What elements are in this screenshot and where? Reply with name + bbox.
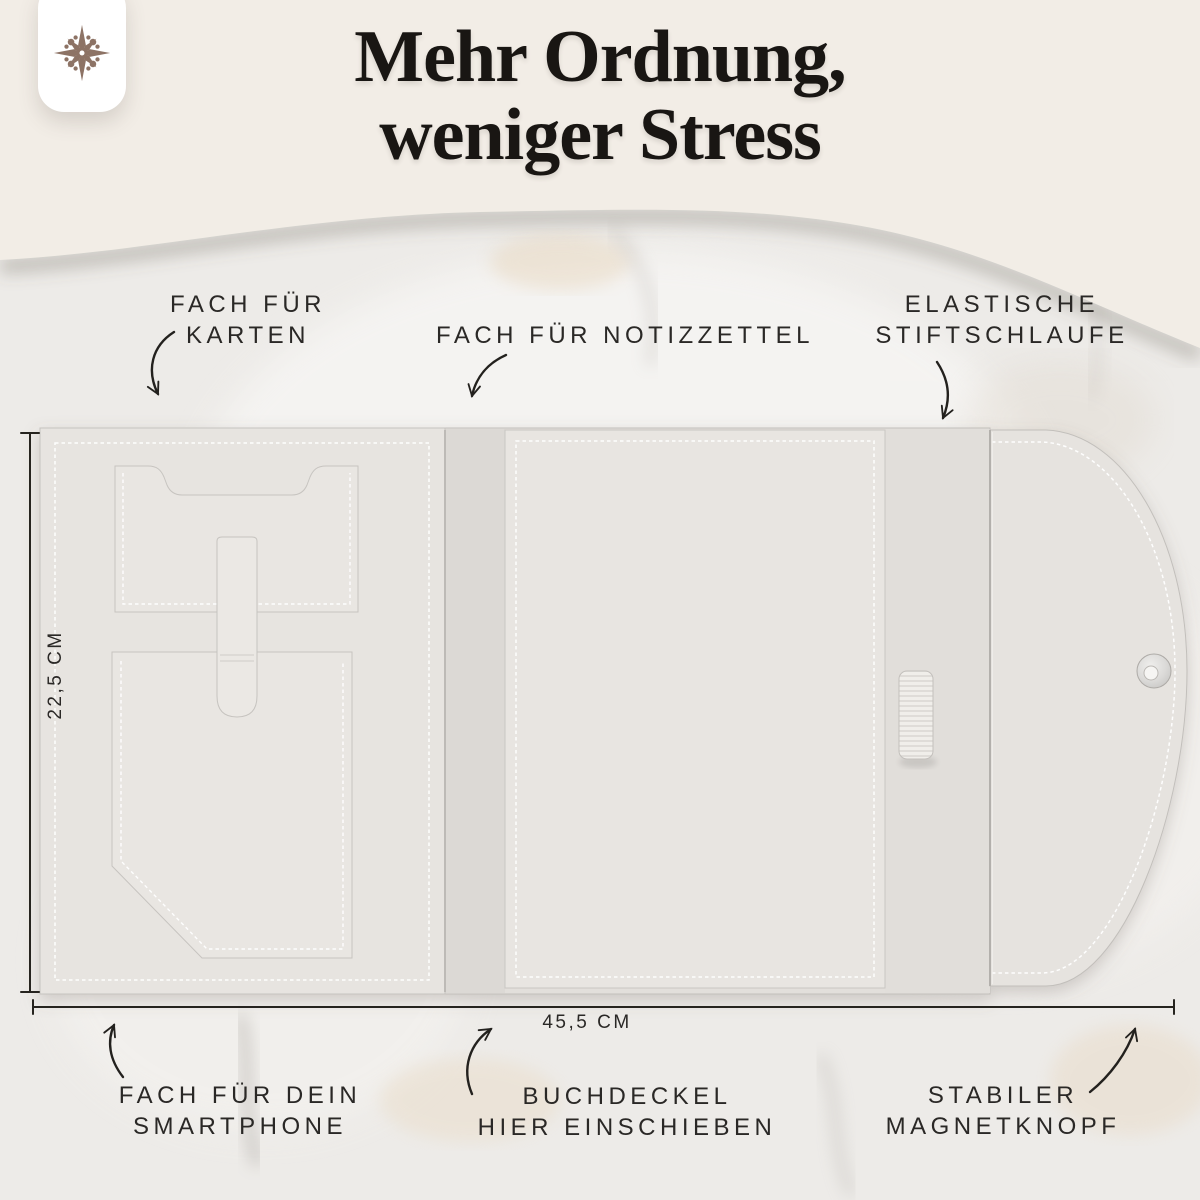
callout-smartphone-pocket: FACH FÜR DEIN SMARTPHONE xyxy=(119,1080,362,1142)
magnet-rivet xyxy=(1144,666,1158,680)
callout-magnet: STABILER MAGNETKNOPF xyxy=(886,1080,1121,1142)
page-title-line2: weniger Stress xyxy=(0,96,1200,174)
height-dimension-label: 22,5 CM xyxy=(45,630,67,719)
left-panel xyxy=(40,428,445,994)
callout-notes-pocket: FACH FÜR NOTIZZETTEL xyxy=(436,320,814,351)
callout-book-cover-line2: HIER EINSCHIEBEN xyxy=(478,1112,777,1143)
callout-magnet-line2: MAGNETKNOPF xyxy=(886,1111,1121,1142)
pen-loop xyxy=(899,671,937,768)
callout-smartphone-line1: FACH FÜR DEIN xyxy=(119,1080,362,1111)
callout-pen-loop: ELASTISCHE STIFTSCHLAUFE xyxy=(875,289,1128,351)
width-dimension-label: 45,5 CM xyxy=(542,1012,631,1034)
notes-pocket xyxy=(505,430,885,988)
callout-pen-loop-line1: ELASTISCHE xyxy=(875,289,1128,320)
page-title-line1: Mehr Ordnung, xyxy=(0,18,1200,96)
callout-book-cover-line1: BUCHDECKEL xyxy=(478,1081,777,1112)
organizer-cover xyxy=(40,428,1187,994)
callout-pen-loop-line2: STIFTSCHLAUFE xyxy=(875,320,1128,351)
callout-magnet-line1: STABILER xyxy=(886,1080,1121,1111)
product-infographic: Mehr Ordnung, weniger Stress FACH FÜR KA… xyxy=(0,0,1200,1200)
callout-book-cover: BUCHDECKEL HIER EINSCHIEBEN xyxy=(478,1081,777,1143)
spine-strip-left xyxy=(445,429,505,993)
closure-strap xyxy=(217,537,257,717)
page-title: Mehr Ordnung, weniger Stress xyxy=(0,18,1200,175)
callout-notes-pocket-line1: FACH FÜR NOTIZZETTEL xyxy=(436,320,814,351)
callout-smartphone-line2: SMARTPHONE xyxy=(119,1111,362,1142)
callout-card-pocket-line2: KARTEN xyxy=(170,320,326,351)
callout-card-pocket-line1: FACH FÜR xyxy=(170,289,326,320)
callout-card-pocket: FACH FÜR KARTEN xyxy=(170,289,326,351)
